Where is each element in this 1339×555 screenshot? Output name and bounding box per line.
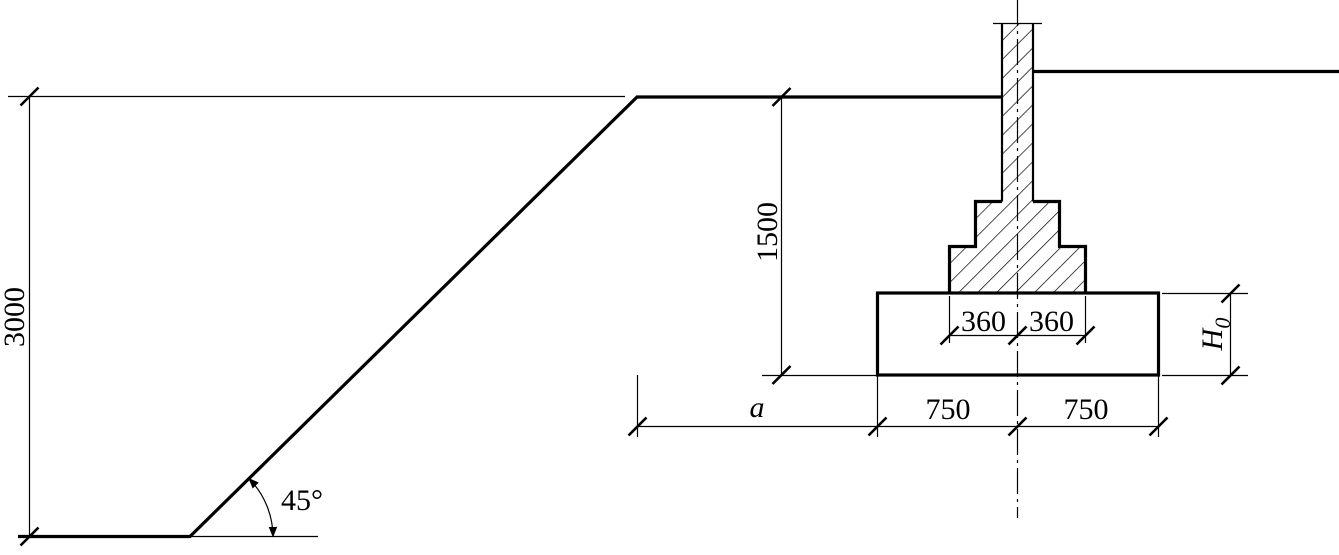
dim-label-360-left: 360 [961,305,1006,338]
angle-arc-arrow [249,479,273,537]
h0-subscript: 0 [1210,318,1235,329]
dim-label-45deg: 45° [281,484,323,517]
slope-angle-annotation: 45° [190,479,323,537]
dimension-1500: 1500 [751,88,877,384]
dim-label-750-left: 750 [926,393,971,426]
dim-label-360-right: 360 [1029,305,1074,338]
soil-hatch-slope [374,244,507,376]
soil-hatch-right-ground [1063,76,1175,101]
drawing-svg: 3000 1500 a 750 750 360 360 [0,0,1339,555]
h0-symbol: H [1196,326,1229,351]
dimension-a-750-750: a 750 750 [629,375,1168,437]
dim-label-1500: 1500 [751,202,784,262]
foundation-section-drawing: 3000 1500 a 750 750 360 360 [0,0,1339,555]
dim-label-a: a [750,391,765,424]
dim-label-750-right: 750 [1064,393,1109,426]
excavation-profile-line [18,97,1002,537]
dim-label-h0: H0 [1196,318,1235,352]
dimension-h0: H0 [1162,285,1248,385]
dim-label-3000: 3000 [0,287,31,347]
dimension-3000: 3000 [0,88,625,546]
soil-hatch-bench [792,101,955,126]
soil-hatch-pit-bottom [43,540,155,555]
